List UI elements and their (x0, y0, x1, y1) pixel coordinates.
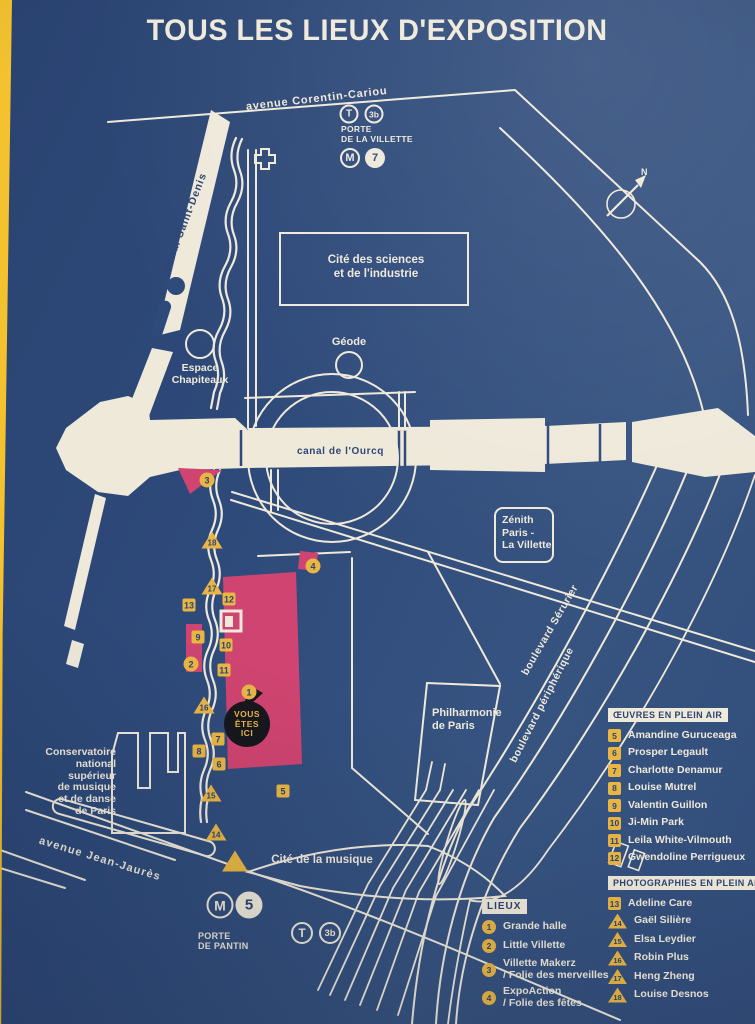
station-label-porte-de-la-villette: PORTE DE LA VILLETTE (341, 125, 413, 144)
legend-badge-12: 12 (608, 852, 621, 865)
metro-icon-pantin: M (207, 892, 234, 919)
legend-oeuvres-rows: 5Amandine Guruceaga 6Prosper Legault 7Ch… (608, 729, 745, 865)
tram-line-3b-villette: 3b (365, 105, 384, 124)
legend-badge-13: 13 (608, 897, 621, 910)
legend-badge-2: 2 (482, 939, 496, 953)
legend-badge-16: 16 (608, 951, 627, 966)
place-label-geode: Géode (309, 336, 389, 348)
legend-badge-7: 7 (608, 764, 621, 777)
legend-badge-3: 3 (482, 963, 496, 977)
legend-badge-5: 5 (608, 729, 621, 742)
railway-tracks (318, 762, 494, 1015)
legend-name-17: Heng Zheng (634, 971, 695, 983)
map-marker-8: 8 (193, 745, 206, 758)
place-label-cite-musique: Cité de la musique (242, 854, 402, 866)
legend-item-9: 9Valentin Guillon (608, 799, 745, 812)
legend-name-14: Gaël Silière (634, 915, 691, 927)
tram-icon-villette: T (340, 105, 359, 124)
legend-item-7: 7Charlotte Denamur (608, 764, 745, 777)
legend-badge-8: 8 (608, 782, 621, 795)
legend-item-5: 5Amandine Guruceaga (608, 729, 745, 742)
place-label-espace-chapiteaux: Espace Chapiteaux (158, 362, 242, 386)
tram-line-3b-pantin: 3b (319, 922, 341, 944)
street-label-canal-ourcq: canal de l'Ourcq (283, 446, 398, 457)
legend-item-8: 8Louise Mutrel (608, 782, 745, 795)
legend-item-10: 10Ji-Min Park (608, 817, 745, 830)
metro-line-5-badge: 5 (236, 892, 263, 919)
legend-item-16: 16Robin Plus (608, 951, 755, 966)
map-marker-12: 12 (223, 593, 236, 606)
map-marker-10: 10 (220, 639, 233, 652)
you-are-here-label: VOUS ÊTES ICI (222, 710, 272, 739)
legend-name-1: Grande halle (503, 921, 567, 933)
legend-item-17: 17Heng Zheng (608, 969, 755, 984)
legend-badge-15: 15 (608, 932, 627, 947)
legend-photos-header: PHOTOGRAPHIES EN PLEIN AIR (608, 876, 755, 890)
legend-name-15: Elsa Leydier (634, 934, 696, 946)
map-marker-13: 13 (183, 599, 196, 612)
legend-name-18: Louise Desnos (634, 989, 709, 1001)
legend-badge-9: 9 (608, 799, 621, 812)
map-marker-3: 3 (200, 473, 215, 488)
map-marker-1: 1 (242, 685, 257, 700)
legend-item-11: 11Leila White-Vilmouth (608, 834, 745, 847)
poster-photo: TOUS LES LIEUX D'EXPOSITION (0, 0, 755, 1024)
legend-item-3: 3Villette Makerz / Folie des merveilles (482, 958, 609, 981)
page-title-text: TOUS LES LIEUX D'EXPOSITION (147, 14, 608, 48)
legend-badge-1: 1 (482, 920, 496, 934)
place-label-conservatoire: Conservatoire national supérieur de musi… (28, 747, 116, 818)
legend-item-15: 15Elsa Leydier (608, 932, 755, 947)
metro-line-7-badge: 7 (365, 148, 385, 168)
legend-item-12: 12Gwendoline Perrigueux (608, 852, 745, 865)
map-marker-2: 2 (184, 657, 199, 672)
legend-item-1: 1Grande halle (482, 920, 609, 934)
legend-name-16: Robin Plus (634, 952, 689, 964)
legend-oeuvres-header: ŒUVRES EN PLEIN AIR (608, 708, 728, 722)
legend-name-9: Valentin Guillon (628, 800, 707, 812)
legend-name-12: Gwendoline Perrigueux (628, 852, 745, 864)
legend-name-13: Adeline Care (628, 898, 692, 910)
legend-item-2: 2Little Villette (482, 939, 609, 953)
page-title: TOUS LES LIEUX D'EXPOSITION (0, 14, 755, 48)
legend-name-6: Prosper Legault (628, 747, 708, 759)
legend-lieux: LIEUX 1Grande halle 2Little Villette 3Vi… (482, 896, 609, 1009)
place-label-cite-sciences: Cité des sciences et de l'industrie (282, 254, 470, 281)
legend-badge-4: 4 (482, 991, 496, 1005)
legend-badge-11: 11 (608, 834, 621, 847)
station-label-porte-de-pantin: PORTE DE PANTIN (198, 931, 249, 951)
place-label-zenith: Zénith Paris - La Villette (502, 514, 551, 552)
legend-badge-18: 18 (608, 988, 627, 1003)
map-marker-6: 6 (213, 758, 226, 771)
tram-icon-pantin: T (291, 922, 313, 944)
legend-photos-rows: 13Adeline Care 14Gaël Silière 15Elsa Ley… (608, 897, 755, 1003)
legend-lieux-header: LIEUX (482, 899, 527, 914)
legend-item-14: 14Gaël Silière (608, 914, 755, 929)
legend-name-4: ExpoAction / Folie des fêtes (503, 986, 582, 1009)
legend-item-13: 13Adeline Care (608, 897, 755, 910)
legend-item-4: 4ExpoAction / Folie des fêtes (482, 986, 609, 1009)
legend-item-18: 18Louise Desnos (608, 988, 755, 1003)
compass-north-label: N (641, 167, 648, 177)
map-marker-11: 11 (218, 664, 231, 677)
metro-icon-villette: M (340, 148, 360, 168)
legend-name-7: Charlotte Denamur (628, 765, 723, 777)
legend-oeuvres: ŒUVRES EN PLEIN AIR 5Amandine Guruceaga … (608, 705, 745, 865)
place-label-philharmonie: Philharmonie de Paris (432, 707, 502, 733)
legend-badge-10: 10 (608, 817, 621, 830)
map-marker-5: 5 (277, 785, 290, 798)
legend-badge-17: 17 (608, 969, 627, 984)
legend-item-6: 6Prosper Legault (608, 747, 745, 760)
legend-name-8: Louise Mutrel (628, 782, 696, 794)
legend-badge-6: 6 (608, 747, 621, 760)
map-marker-7: 7 (212, 733, 225, 746)
legend-lieux-rows: 1Grande halle 2Little Villette 3Villette… (482, 920, 609, 1009)
map-marker-4: 4 (306, 559, 321, 574)
map-marker-9: 9 (192, 631, 205, 644)
legend-name-10: Ji-Min Park (628, 817, 684, 829)
legend-name-2: Little Villette (503, 940, 565, 952)
legend-badge-14: 14 (608, 914, 627, 929)
water-shapes (56, 110, 755, 668)
legend-name-5: Amandine Guruceaga (628, 730, 737, 742)
legend-name-11: Leila White-Vilmouth (628, 835, 732, 847)
legend-photos: PHOTOGRAPHIES EN PLEIN AIR 13Adeline Car… (608, 873, 755, 1003)
legend-name-3: Villette Makerz / Folie des merveilles (503, 958, 609, 981)
